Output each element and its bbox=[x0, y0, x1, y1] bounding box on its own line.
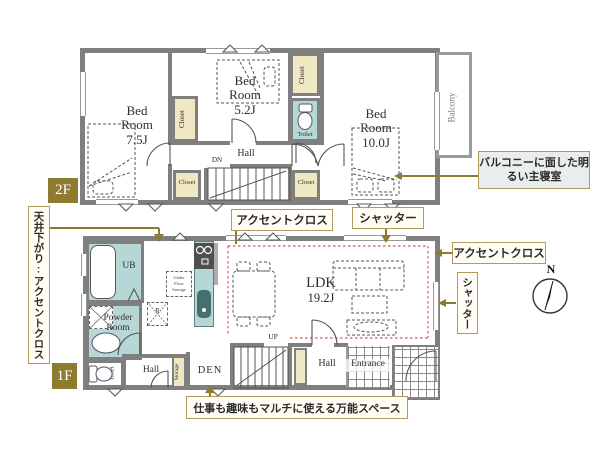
pillow bbox=[264, 67, 275, 86]
pillow bbox=[378, 179, 394, 192]
toilet-bowl-1f bbox=[96, 367, 112, 381]
sink-drain bbox=[202, 308, 206, 312]
burner bbox=[205, 247, 212, 254]
refrigerator-x bbox=[147, 302, 168, 326]
leader-arrows bbox=[154, 172, 446, 393]
compass-north-label: N bbox=[543, 263, 559, 277]
bed-100 bbox=[352, 128, 399, 195]
fixtures bbox=[89, 104, 312, 382]
burner-small bbox=[202, 259, 208, 264]
stairs-1f bbox=[234, 347, 288, 388]
sofa bbox=[333, 261, 404, 290]
door-arcs bbox=[118, 119, 436, 388]
dining-table bbox=[233, 271, 275, 317]
chair bbox=[257, 262, 270, 271]
chair bbox=[237, 317, 250, 326]
annotation-shutter-top: シャッター bbox=[352, 207, 424, 229]
pillow bbox=[93, 181, 113, 194]
pillow bbox=[357, 179, 373, 192]
toilet-bowl-2f bbox=[298, 113, 312, 130]
annotation-accent-cloth-right: アクセントクロス bbox=[452, 242, 546, 264]
stairs-2f bbox=[208, 168, 290, 200]
furniture bbox=[88, 60, 404, 335]
annotation-accent-cloth-top: アクセントクロス bbox=[231, 209, 333, 231]
annotation-den-note: 仕事も趣味もマルチに使える万能スペース bbox=[186, 396, 408, 419]
bed-52 bbox=[217, 60, 279, 103]
floor1-badge: 1F bbox=[52, 363, 77, 389]
coffee-table bbox=[352, 296, 387, 313]
annotation-shutter-right: シャッター bbox=[457, 272, 478, 334]
floor2-badge: 2F bbox=[48, 178, 78, 203]
annotation-ceiling-accent: 天井下がり:アクセントクロス bbox=[28, 206, 50, 364]
compass-icon bbox=[533, 279, 567, 313]
accent-cloth-lines bbox=[228, 246, 428, 338]
chair bbox=[257, 317, 270, 326]
powder-sink bbox=[92, 333, 120, 353]
chair bbox=[237, 262, 250, 271]
annotation-master-bedroom: バルコニーに面した明るい主寝室 bbox=[478, 151, 590, 189]
floor-plan-canvas: Balcony Closet Closet Toilet Closet Clos… bbox=[0, 0, 600, 468]
washer-x bbox=[89, 306, 113, 329]
burner bbox=[197, 247, 204, 254]
toilet-tank-2f bbox=[299, 104, 312, 112]
tv bbox=[354, 322, 388, 332]
